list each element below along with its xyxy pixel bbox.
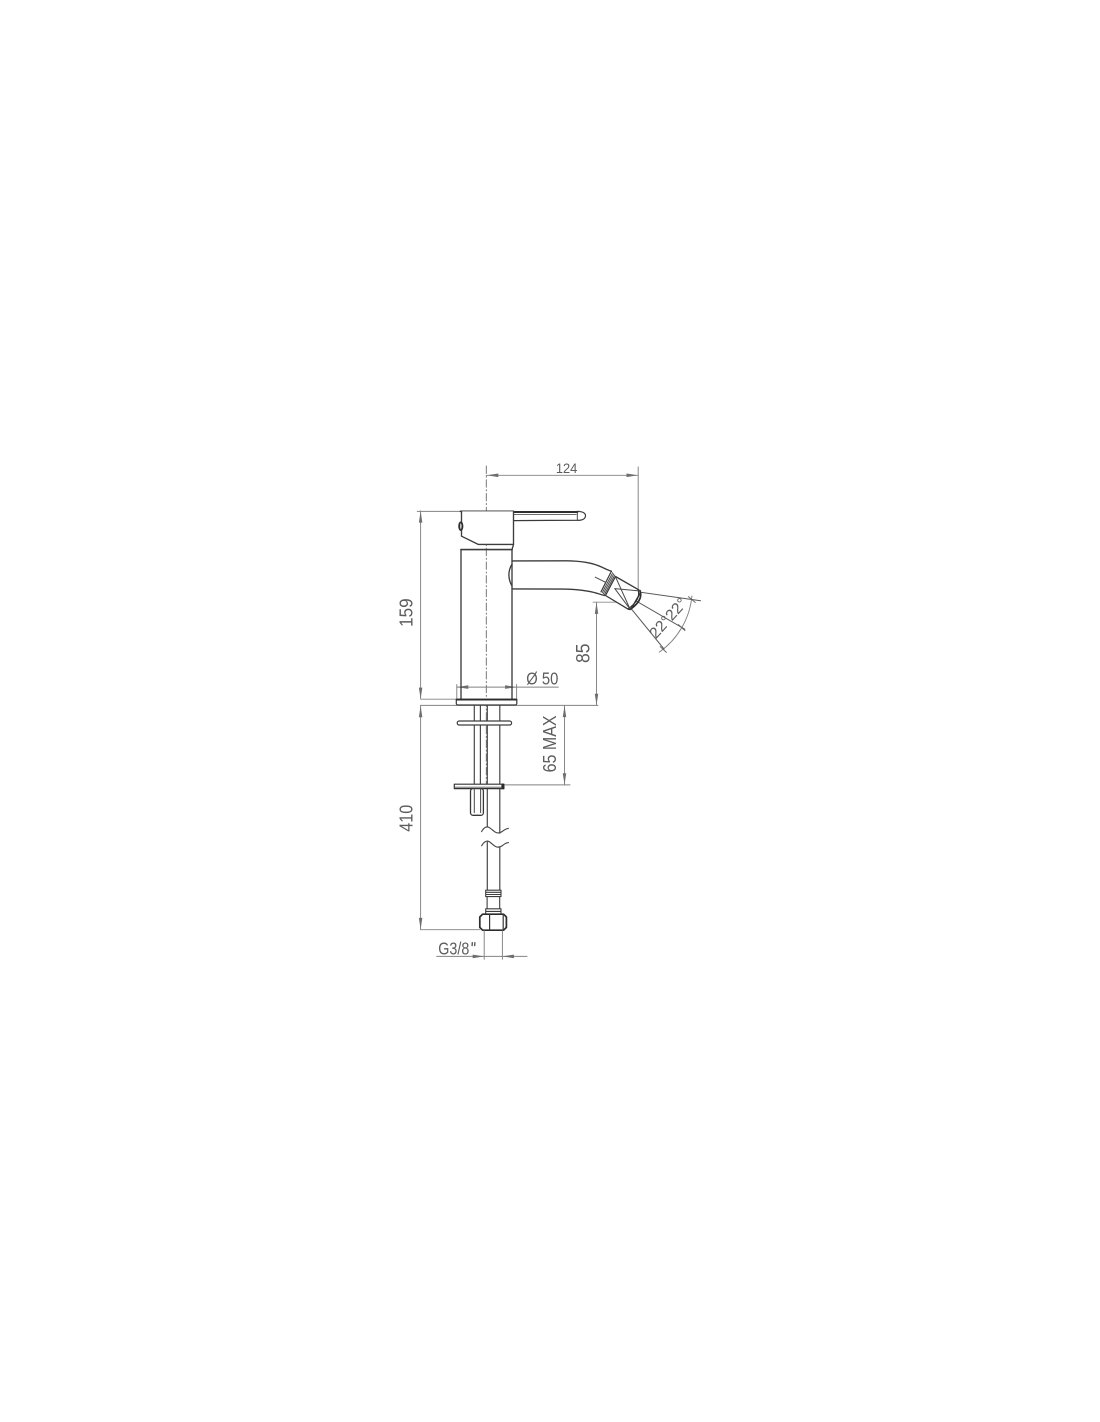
svg-text:159: 159 [396, 598, 417, 627]
svg-text:410: 410 [396, 805, 417, 832]
svg-text:65 MAX: 65 MAX [539, 715, 560, 772]
svg-text:Ø 50: Ø 50 [526, 669, 558, 689]
svg-text:G3/8: G3/8 [438, 939, 469, 959]
svg-text:124: 124 [556, 461, 578, 477]
svg-text:85: 85 [574, 644, 595, 664]
